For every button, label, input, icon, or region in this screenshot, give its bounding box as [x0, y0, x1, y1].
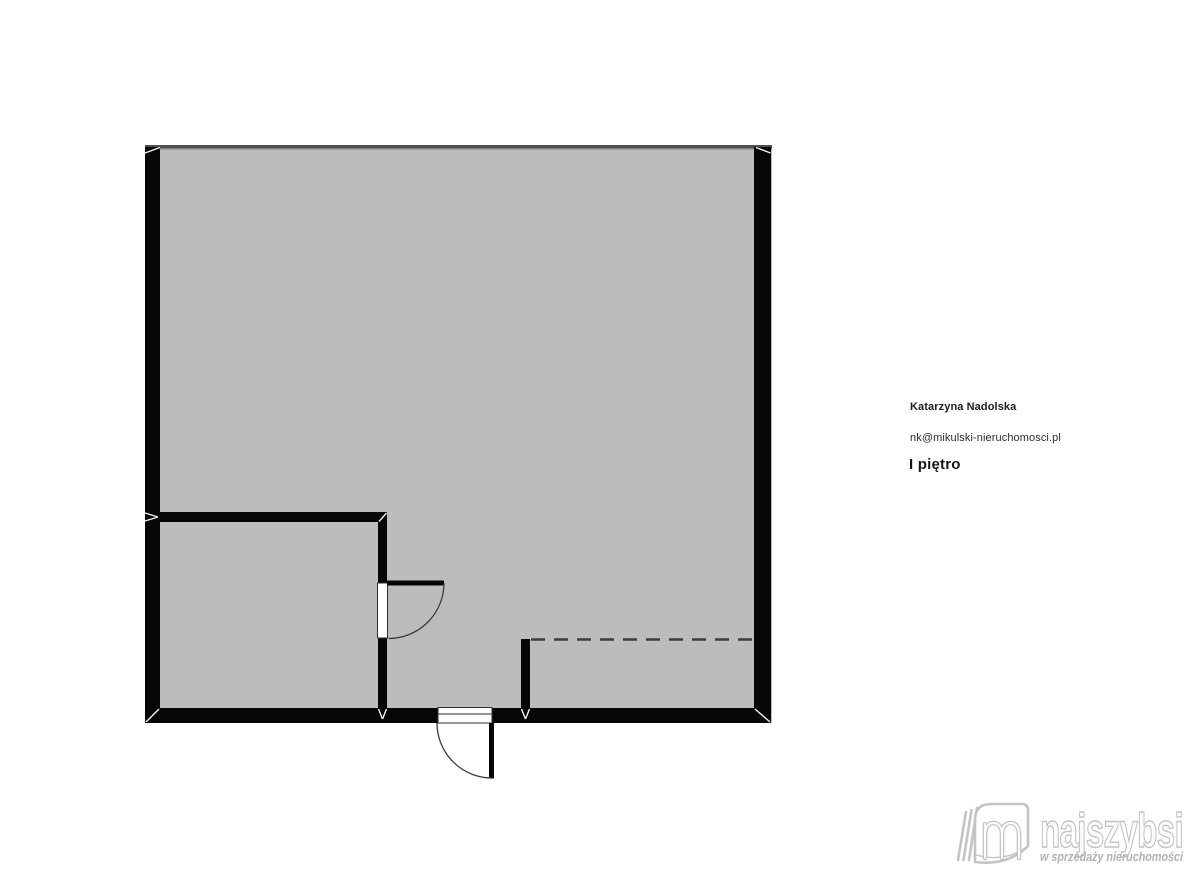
floor-area [145, 145, 772, 723]
outer-wall-top-shade [145, 149, 772, 151]
outer-wall-top [145, 145, 772, 149]
interior-door-leaf [387, 581, 444, 586]
interior-door-frame [378, 583, 388, 638]
room-wall-horizontal [145, 512, 387, 522]
entrance-door-opening [438, 708, 492, 724]
najszybsi-logo: najszybsi w sprzedaży nieruchomości [958, 804, 1183, 864]
agent-name: Katarzyna Nadolska [910, 401, 1016, 413]
book-m-logo-icon [958, 804, 1028, 863]
outer-wall-left [145, 147, 160, 723]
agent-email: nk@mikulski-nieruchomosci.pl [910, 432, 1061, 444]
floor-label: I piętro [909, 456, 961, 473]
room-wall-vertical-lower [378, 638, 387, 708]
floorplan-page: { "agent": { "name": "Katarzyna Nadolska… [0, 0, 1200, 878]
entrance-door-leaf [489, 723, 494, 779]
outer-wall-right [754, 147, 771, 723]
room-wall-vertical-upper [378, 512, 387, 583]
wall-stub [521, 639, 530, 708]
entrance-door [437, 708, 494, 779]
logo-tagline-text: w sprzedaży nieruchomości [1040, 849, 1183, 864]
entrance-door-swing-arc [437, 723, 492, 778]
